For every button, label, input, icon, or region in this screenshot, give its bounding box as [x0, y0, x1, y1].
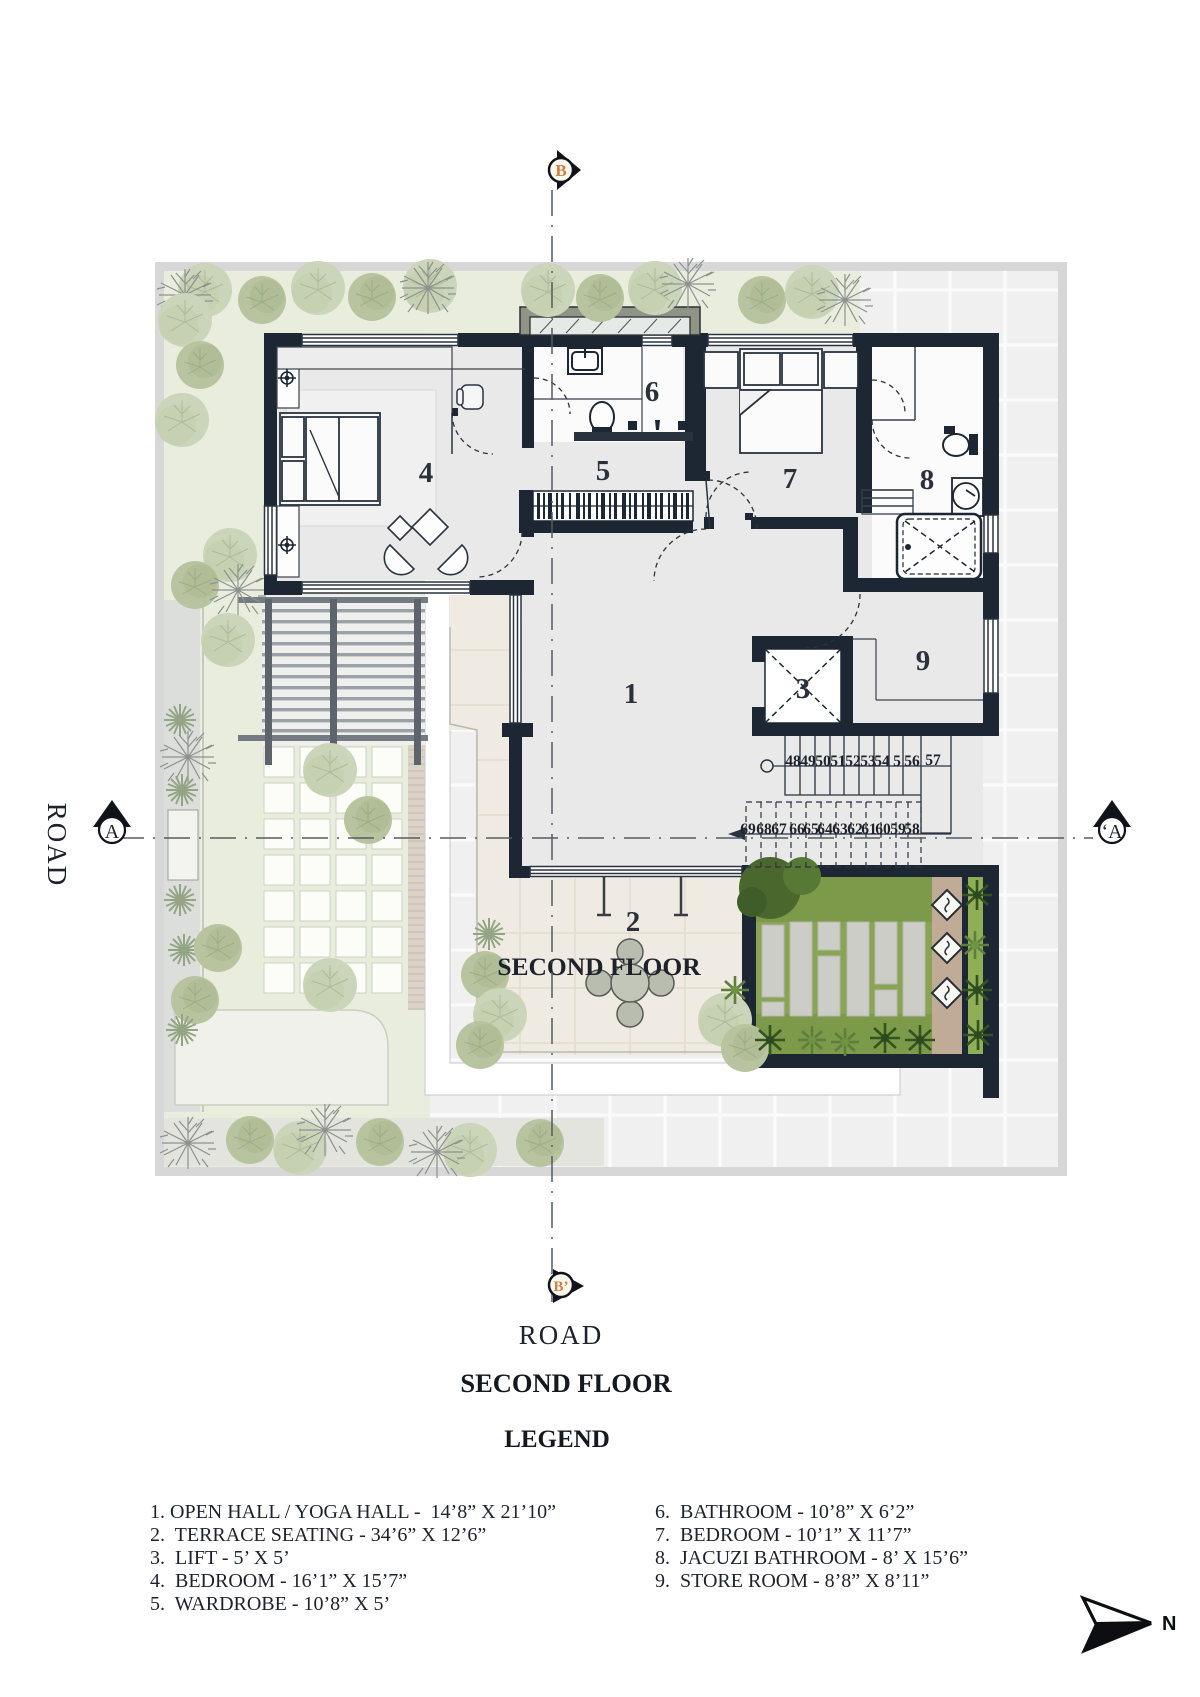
svg-text:9: 9: [916, 645, 931, 677]
svg-text:7. BEDROOM - 10’1” X 11’7”: 7. BEDROOM - 10’1” X 11’7”: [655, 1524, 911, 1546]
svg-text:56: 56: [904, 753, 920, 770]
svg-text:LEGEND: LEGEND: [504, 1426, 610, 1453]
svg-text:69: 69: [740, 821, 756, 838]
svg-text:50: 50: [815, 753, 831, 770]
svg-text:5. WARDROBE - 10’8” X 5’: 5. WARDROBE - 10’8” X 5’: [150, 1593, 390, 1615]
svg-text:3. LIFT - 5’ X 5’: 3. LIFT - 5’ X 5’: [150, 1547, 290, 1569]
svg-text:9. STORE ROOM - 8’8” X 8’11”: 9. STORE ROOM - 8’8” X 8’11”: [655, 1570, 929, 1592]
svg-text:52: 52: [845, 753, 861, 770]
svg-text:58: 58: [904, 821, 920, 838]
svg-text:1: 1: [624, 678, 639, 710]
svg-text:67: 67: [771, 821, 787, 838]
svg-text:7: 7: [783, 463, 798, 495]
svg-text:48: 48: [785, 753, 801, 770]
svg-text:60: 60: [875, 821, 891, 838]
svg-text:A: A: [105, 821, 120, 843]
svg-text:SECOND FLOOR: SECOND FLOOR: [460, 1368, 672, 1398]
svg-text:68: 68: [756, 821, 772, 838]
svg-text:3: 3: [796, 673, 811, 705]
svg-text:5: 5: [596, 455, 611, 487]
svg-text:6: 6: [645, 376, 660, 408]
svg-text:4. BEDROOM - 16’1” X 15’7”: 4. BEDROOM - 16’1” X 15’7”: [150, 1570, 407, 1592]
svg-text:4: 4: [419, 457, 434, 489]
svg-text:64: 64: [817, 821, 833, 838]
svg-text:ROAD: ROAD: [519, 1320, 604, 1350]
svg-text:8. JACUZI BATHROOM - 8’ X 15’: 8. JACUZI BATHROOM - 8’ X 15’6”: [655, 1547, 968, 1569]
svg-text:B’: B’: [554, 1279, 569, 1295]
svg-text:54: 54: [874, 753, 890, 770]
svg-text:51: 51: [830, 753, 846, 770]
svg-text:49: 49: [800, 753, 816, 770]
svg-text:63: 63: [832, 821, 848, 838]
svg-text:1. OPEN HALL / YOGA HALL - 14: 1. OPEN HALL / YOGA HALL - 14’8” X 21’10…: [150, 1501, 556, 1523]
svg-text:2: 2: [626, 906, 641, 938]
svg-text:6. BATHROOM - 10’8” X 6’2”: 6. BATHROOM - 10’8” X 6’2”: [655, 1501, 914, 1523]
svg-text:2. TERRACE SEATING - 34’6” X: 2. TERRACE SEATING - 34’6” X 12’6”: [150, 1524, 486, 1546]
svg-text:5: 5: [893, 753, 901, 770]
svg-text:8: 8: [920, 464, 935, 496]
svg-text:‘A: ‘A: [1101, 821, 1123, 843]
svg-text:N: N: [1162, 1613, 1176, 1635]
svg-text:57: 57: [925, 752, 941, 769]
svg-text:B: B: [555, 161, 566, 180]
svg-text:SECOND FLOOR: SECOND FLOOR: [497, 952, 701, 981]
svg-text:ROAD: ROAD: [42, 803, 72, 888]
